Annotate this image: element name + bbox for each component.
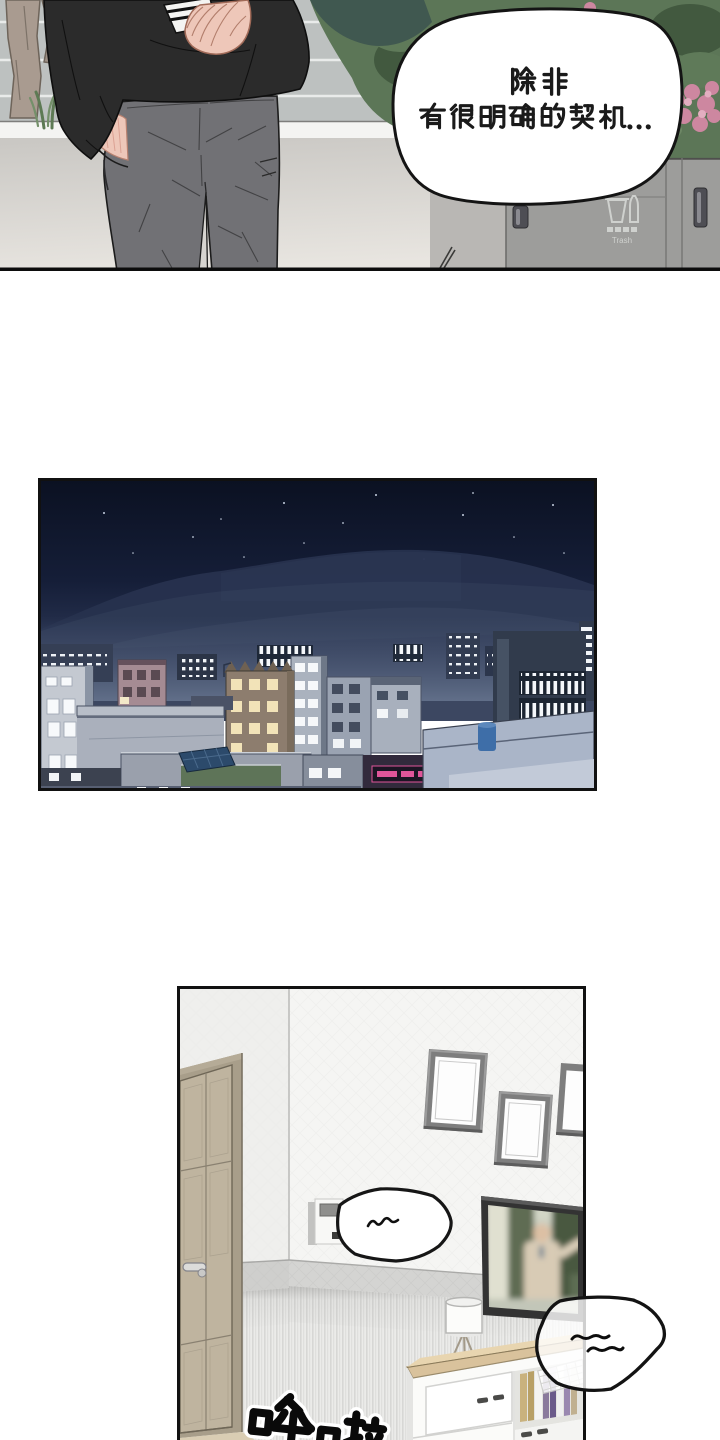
svg-text:Trash: Trash (612, 236, 632, 245)
